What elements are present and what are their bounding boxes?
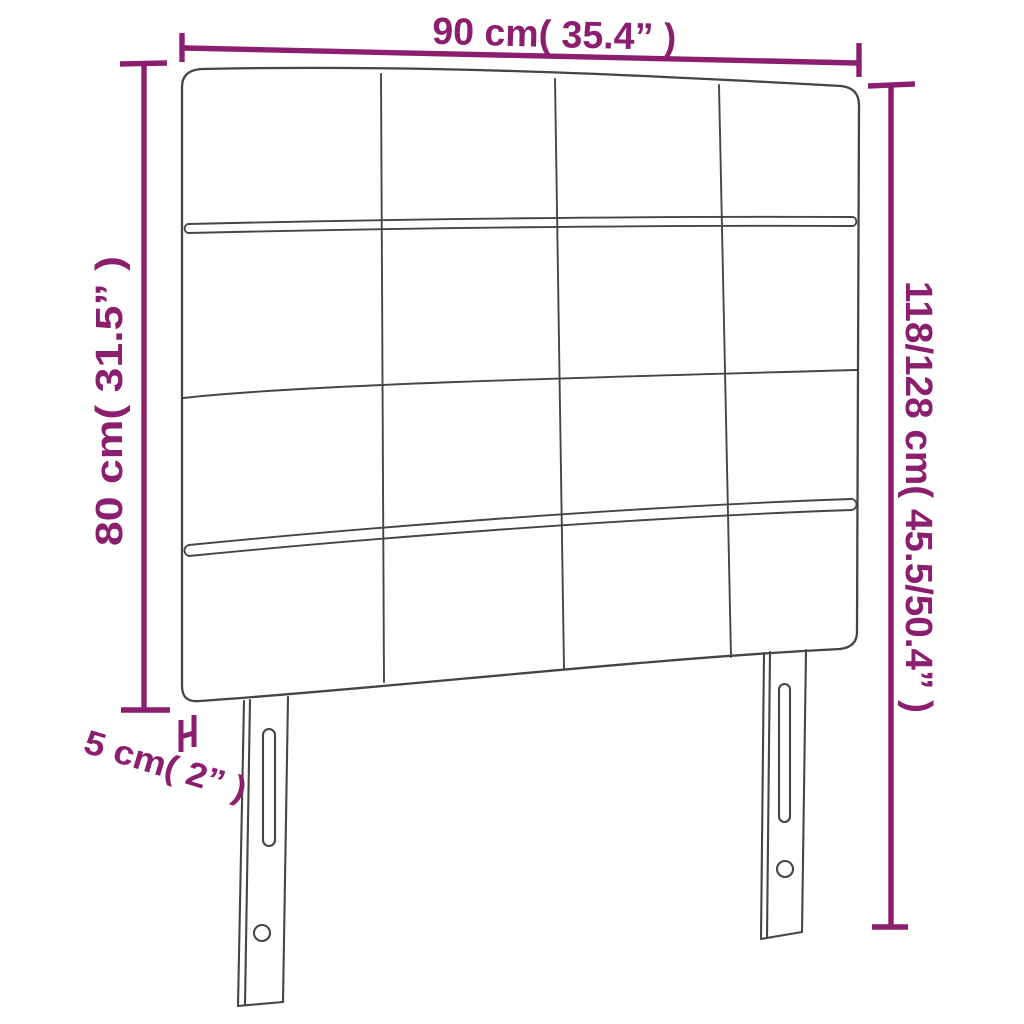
width-dimension-label: 90 cm( 35.4” ) (432, 11, 677, 59)
thickness-dimension-label: 5 cm( 2” ) (80, 723, 252, 808)
right-height-dimension-label: 118/128 cm( 45.5/50.4” ) (897, 281, 939, 713)
dimension-labels: 90 cm( 35.4” ) 80 cm( 31.5” ) 118/128 cm… (80, 11, 939, 809)
diagram-canvas: 90 cm( 35.4” ) 80 cm( 31.5” ) 118/128 cm… (0, 0, 1024, 1024)
left-leg-edge-line (245, 700, 250, 1005)
legs (238, 650, 806, 1006)
headboard-dimension-diagram: 90 cm( 35.4” ) 80 cm( 31.5” ) 118/128 cm… (0, 0, 1024, 1024)
panel-seam-horizontal-1 (185, 217, 857, 233)
thickness-dimension-bracket (180, 715, 194, 752)
panel-seam-vertical-2 (555, 79, 564, 669)
left-height-dimension-label: 80 cm( 31.5” ) (89, 256, 131, 546)
panel-seam-vertical-3 (719, 85, 731, 657)
headboard-outline (182, 68, 859, 701)
left-leg-slot (263, 729, 275, 846)
right-dim-top-tick (868, 84, 915, 86)
right-leg-edge-line (767, 652, 770, 938)
panel-seam-horizontal-3 (184, 499, 856, 556)
panel-seam-horizontal-2 (183, 370, 857, 398)
left-leg (238, 697, 288, 1006)
right-leg (761, 650, 806, 939)
left-leg-screw-hole (254, 925, 270, 941)
headboard (182, 68, 859, 701)
left-dim-top-tick (120, 63, 167, 64)
right-leg-slot (779, 684, 790, 822)
panel-seam-vertical-1 (381, 74, 384, 682)
right-leg-screw-hole (777, 861, 793, 877)
